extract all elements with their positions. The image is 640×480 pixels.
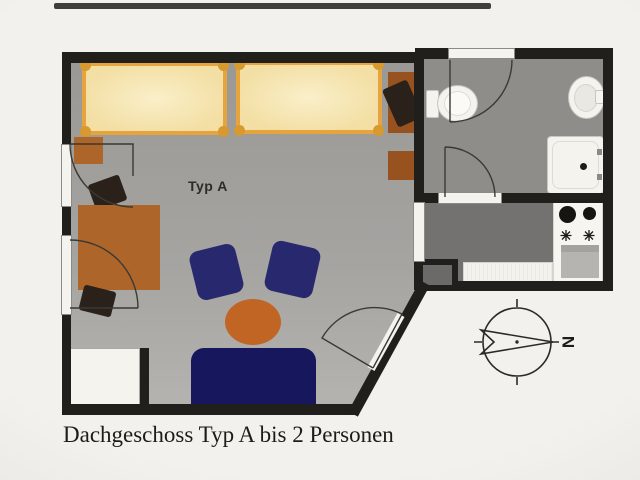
compass-rose: N — [474, 299, 578, 385]
floor-plan-photo: N Typ A Dachgeschoss Typ A bis 2 Persone… — [0, 0, 640, 480]
plan-overlay: N — [0, 0, 640, 480]
wall-diagonal-entry — [353, 283, 425, 414]
door-swing-window-lower — [70, 240, 138, 308]
plan-caption: Dachgeschoss Typ A bis 2 Personen — [63, 422, 394, 448]
door-swing-bathroom-top — [450, 60, 512, 122]
compass-center-dot — [515, 340, 518, 343]
stove-knob-icon — [584, 230, 595, 241]
door-swing-window-upper — [70, 144, 133, 207]
door-swing-entry — [322, 308, 402, 368]
stove-knob-icon — [561, 230, 572, 241]
room-type-label: Typ A — [188, 178, 228, 194]
door-swing-bath-kitchen — [445, 147, 495, 197]
compass-north-label: N — [559, 336, 578, 348]
